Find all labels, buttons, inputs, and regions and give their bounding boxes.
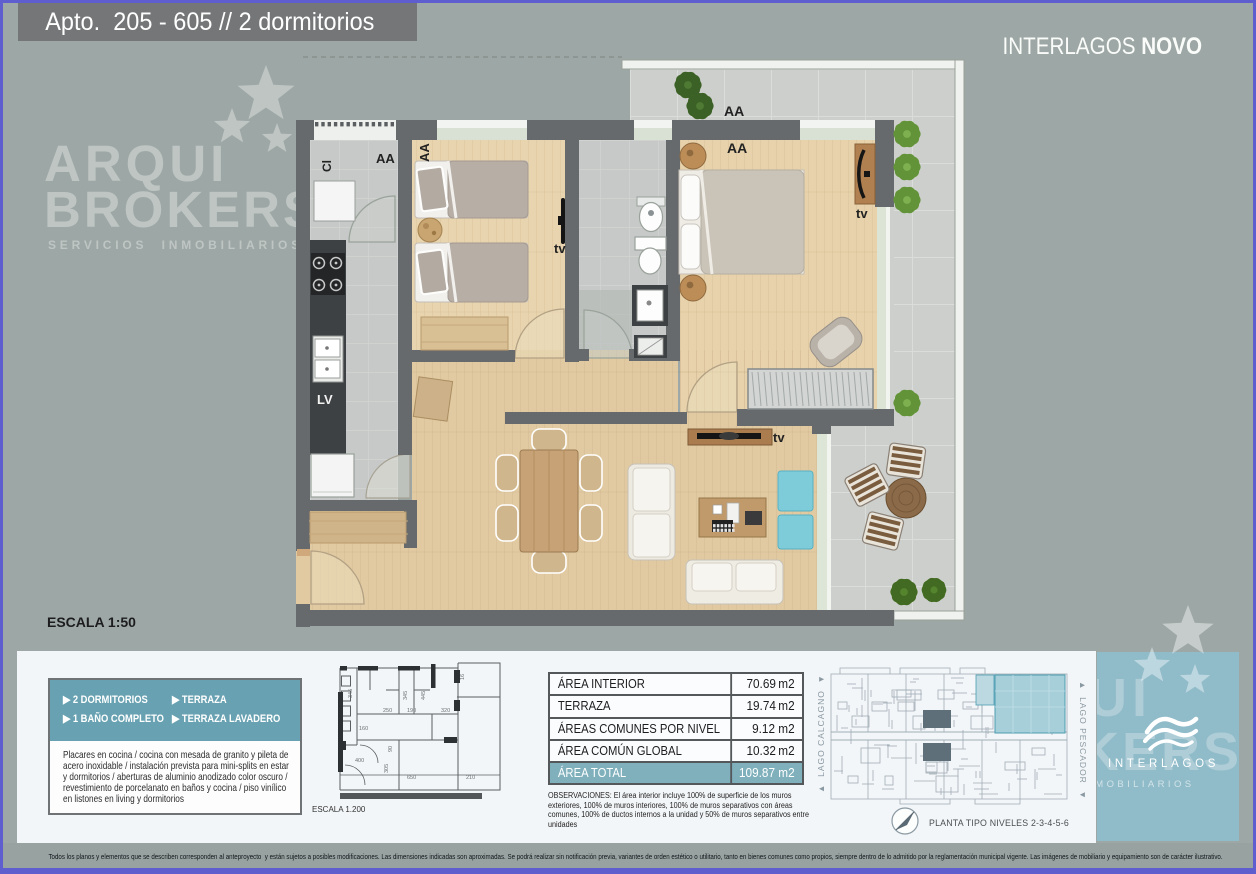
svg-text:345: 345: [348, 689, 354, 698]
svg-text:320: 320: [441, 708, 450, 714]
svg-text:305: 305: [384, 764, 390, 773]
svg-text:210: 210: [466, 775, 475, 781]
svg-text:190: 190: [407, 708, 416, 714]
svg-text:INMOBILIARIOS: INMOBILIARIOS: [1079, 779, 1194, 790]
svg-text:16: 16: [460, 674, 466, 680]
svg-text:445: 445: [421, 691, 427, 700]
svg-text:160: 160: [359, 726, 368, 732]
svg-text:345: 345: [403, 691, 409, 700]
svg-text:UI: UI: [1088, 668, 1152, 728]
svg-text:650: 650: [407, 775, 416, 781]
svg-text:90: 90: [388, 746, 394, 752]
svg-text:250: 250: [383, 708, 392, 714]
svg-text:INTERLAGOS: INTERLAGOS: [1108, 758, 1219, 770]
svg-text:400: 400: [355, 758, 364, 764]
